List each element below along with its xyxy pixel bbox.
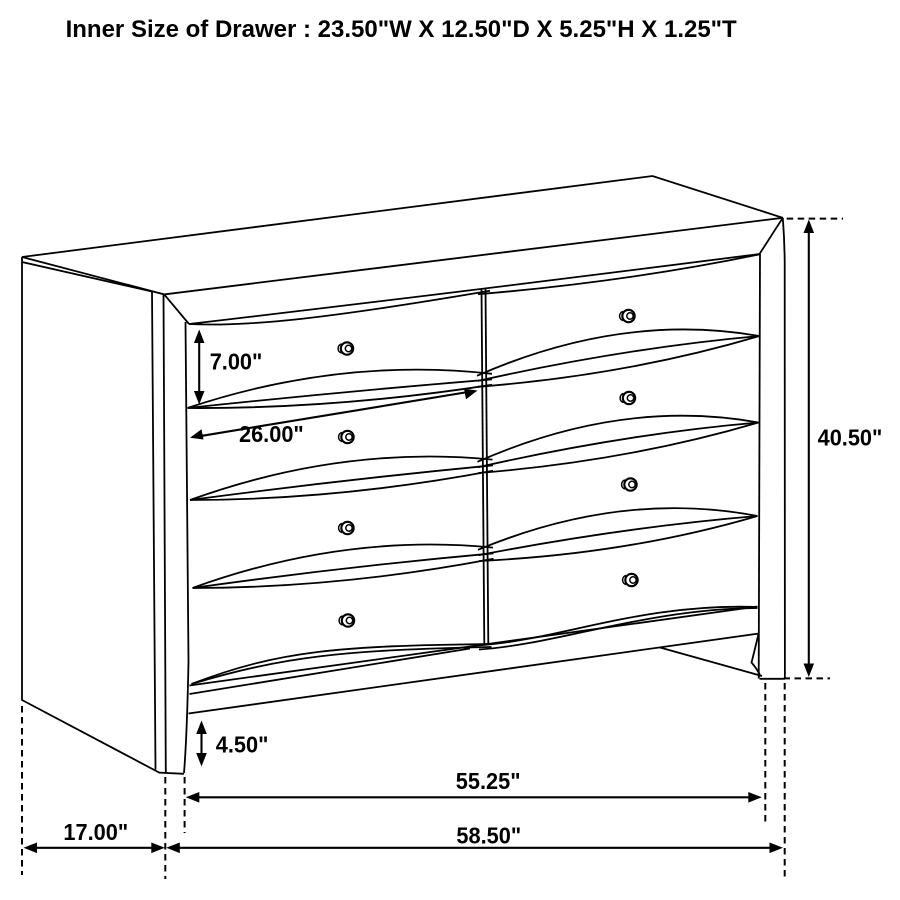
svg-text:Inner Size of Drawer : 23.50"W: Inner Size of Drawer : 23.50"W X 12.50"D… — [66, 16, 737, 43]
svg-text:40.50": 40.50" — [818, 425, 883, 451]
svg-text:55.25": 55.25" — [456, 768, 521, 794]
svg-text:26.00": 26.00" — [239, 421, 304, 447]
svg-text:7.00": 7.00" — [210, 349, 263, 375]
svg-text:58.50": 58.50" — [456, 823, 521, 849]
svg-text:4.50": 4.50" — [216, 732, 269, 758]
svg-text:17.00": 17.00" — [63, 819, 128, 845]
